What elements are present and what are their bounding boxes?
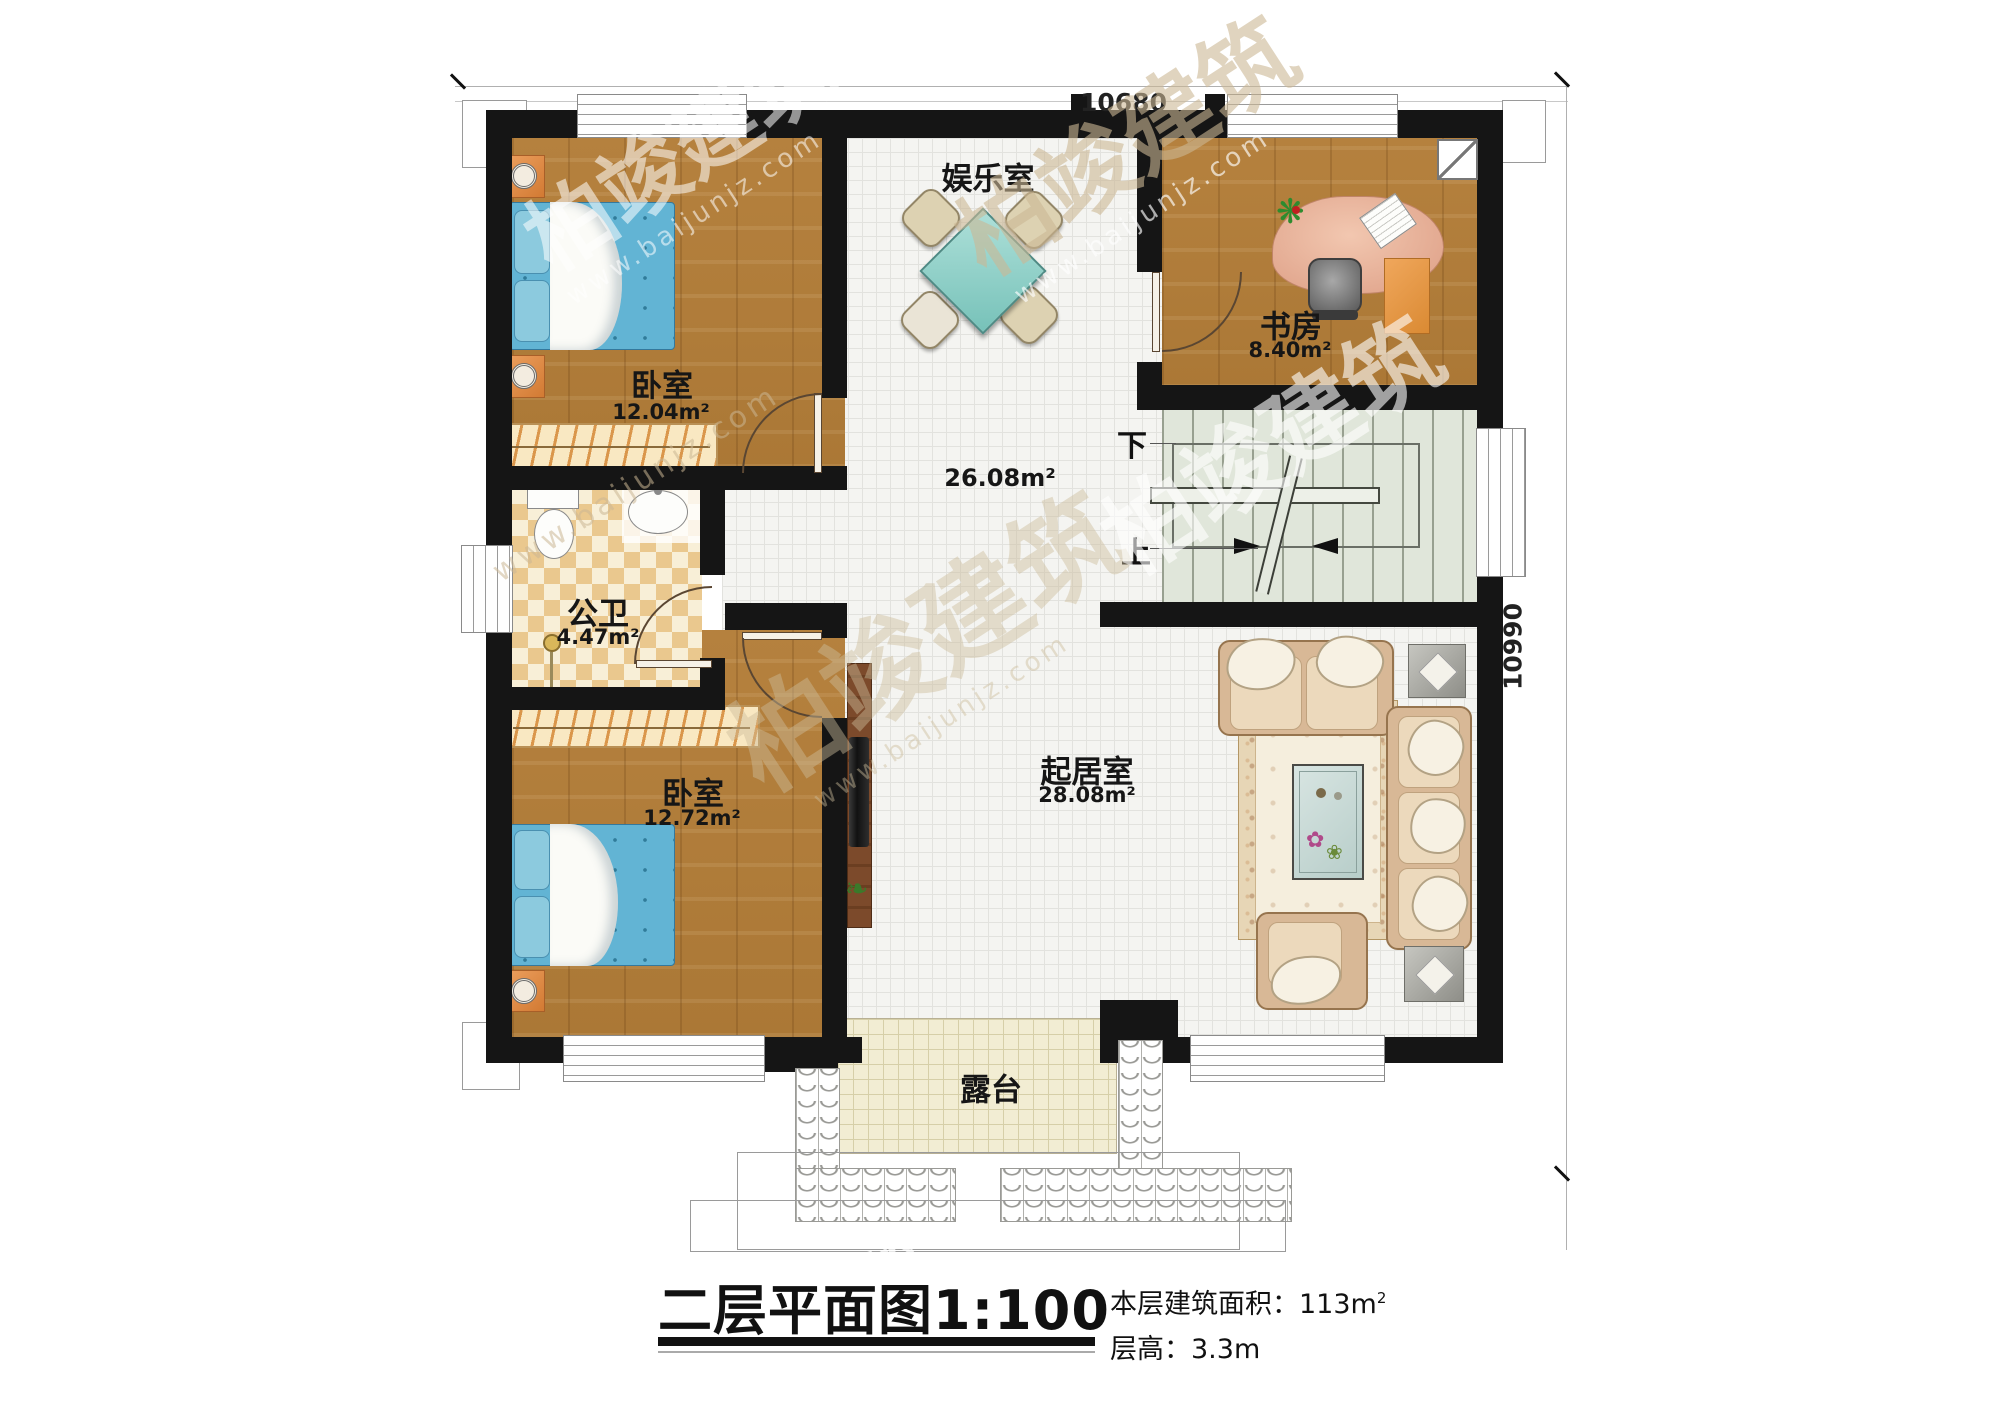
wall-study-south [1137,385,1503,410]
tv-icon [849,737,869,847]
side-table-top [1415,955,1455,995]
wall-stub-terrace-right [1100,1000,1178,1037]
title-underline-thin [658,1351,1095,1353]
floor-area-text: 本层建筑面积：113m [1110,1289,1377,1320]
room-area-entertainment: 26.08m² [944,464,1055,492]
decor-dot [1334,792,1342,800]
dimension-top: 10680 [1080,88,1167,117]
wall-bedroom1-east [822,138,847,398]
flue-shaft [1437,139,1478,180]
flower-decor: ✿ [1306,828,1324,853]
title-underline-thick [658,1337,1095,1346]
room-area-bedroom1: 12.04m² [612,400,710,424]
lamp-icon [511,978,537,1004]
corner-outline-top-right [1502,100,1546,163]
stairs-up-label: 上 [1121,528,1151,572]
floor-area-note: 本层建筑面积：113m2 [1110,1282,1386,1321]
wall-exterior-right [1477,110,1503,1063]
bed-pillow [514,896,550,958]
side-table-top [1418,652,1458,692]
dimension-right: 10990 [1499,602,1528,692]
stairs-down-label: 下 [1117,421,1147,465]
toilet-tank [527,489,579,509]
side-table [1408,644,1466,698]
wall-bedroom2-east-upper [822,630,847,638]
stair-leader-up [1150,548,1258,549]
lamp-icon [511,163,537,189]
plant-icon: ❋ [1276,192,1305,232]
bed-pillow [514,280,550,342]
floor-height-note: 层高：3.3m [1110,1327,1260,1366]
room-area-living: 28.08m² [1038,783,1136,807]
coffee-table: ✿ ❀ [1292,764,1364,880]
wall-bathroom-east-upper [700,490,725,575]
stair-direction-arrow [1234,538,1260,554]
room-label-entertainment: 娱乐室 [942,154,1035,199]
eave-line-right [1566,86,1567,1250]
plan-scale: 1:100 [933,1279,1110,1342]
window [1227,94,1398,138]
plan-title: 二层平面图1:100 [658,1266,1110,1345]
plan-title-text: 二层平面图 [658,1279,933,1342]
wardrobe [503,423,718,468]
lamp-icon [511,363,537,389]
wall-corridor-south [725,603,847,630]
stair-direction-arrow [1312,538,1338,554]
wall-bathroom-south [486,687,725,710]
terrace-platform-outline-lower [690,1200,1286,1252]
plant-flower-dot [1292,206,1300,214]
wall-stairs-south [1100,602,1503,627]
floor-area-sup: 2 [1377,1289,1387,1307]
wardrobe-rod [511,446,709,448]
wall-top-tab [1205,94,1225,110]
room-label-terrace: 露台 [960,1065,1022,1110]
sink-basin [628,490,688,534]
room-label-bedroom1: 卧室 [631,361,693,406]
dimension-tick-bottom-right [1554,1165,1570,1181]
wall-bedroom2-east-lower [822,718,847,1037]
dimension-tick-top-left [450,73,466,89]
wardrobe [503,705,760,748]
stair-leader-down [1150,443,1176,444]
door-leaf-study [1152,272,1160,352]
window [563,1035,765,1082]
window [577,94,747,138]
stair-handrail [1150,487,1380,504]
room-area-study: 8.40m² [1249,338,1332,362]
side-cabinet [1384,258,1430,334]
wall-study-west-upper [1137,138,1162,272]
window [1190,1035,1385,1082]
decor-dot [1316,788,1326,798]
toilet-bowl [534,509,574,559]
bed-pillow [514,830,550,890]
floor-plan-canvas: ❋ ❧ ✿ ❀ [0,0,2000,1413]
plant-icon: ❧ [845,872,868,905]
window [1476,428,1526,577]
room-area-bathroom: 4.47m² [557,625,640,649]
room-area-bedroom2: 12.72m² [643,806,741,830]
flower-decor: ❀ [1326,840,1343,864]
eave-line-top-1 [455,86,1568,87]
bed-pillow [514,210,550,274]
window [461,545,513,633]
wardrobe-rod [513,727,751,729]
side-table [1404,946,1464,1002]
